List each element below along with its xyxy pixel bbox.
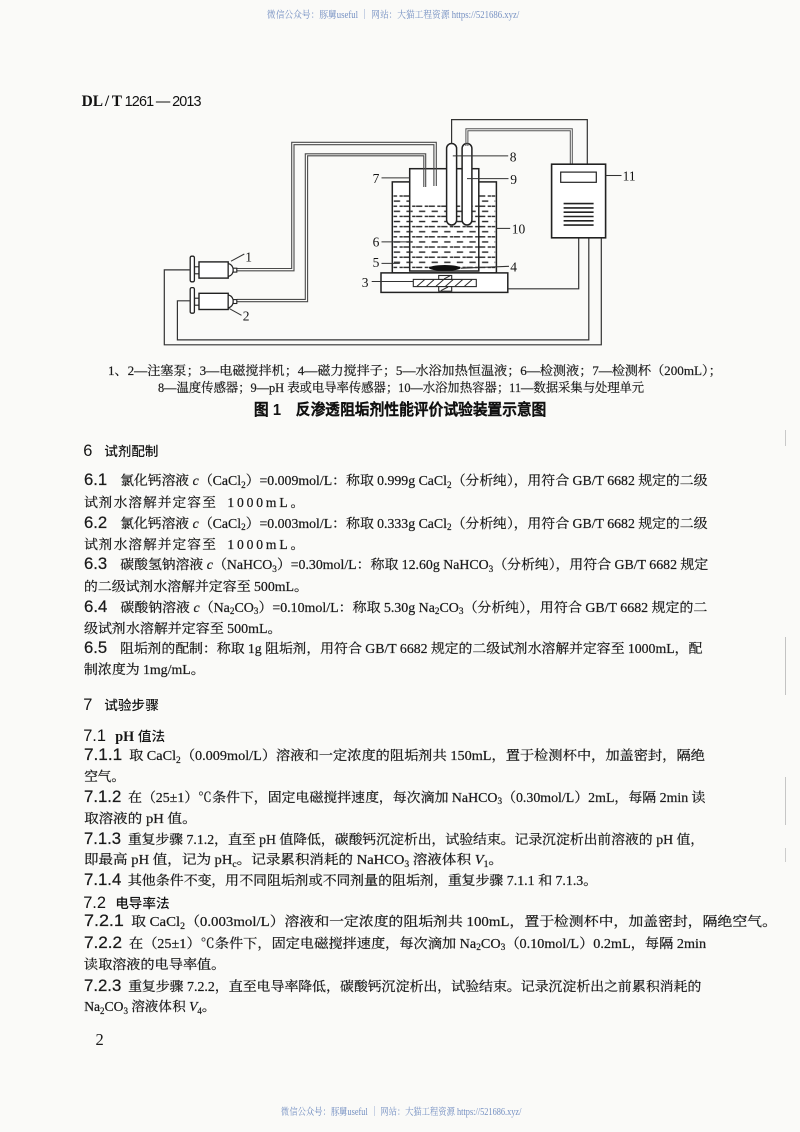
svg-text:5: 5 — [373, 255, 380, 270]
svg-text:3: 3 — [362, 275, 369, 290]
svg-text:4: 4 — [510, 259, 517, 274]
svg-text:10: 10 — [512, 221, 526, 236]
svg-text:1: 1 — [245, 249, 252, 264]
svg-text:6: 6 — [373, 235, 380, 250]
svg-text:11: 11 — [623, 168, 636, 183]
svg-text:9: 9 — [510, 172, 517, 187]
svg-text:2: 2 — [243, 309, 250, 324]
svg-text:7: 7 — [373, 171, 380, 186]
svg-text:8: 8 — [510, 149, 517, 164]
